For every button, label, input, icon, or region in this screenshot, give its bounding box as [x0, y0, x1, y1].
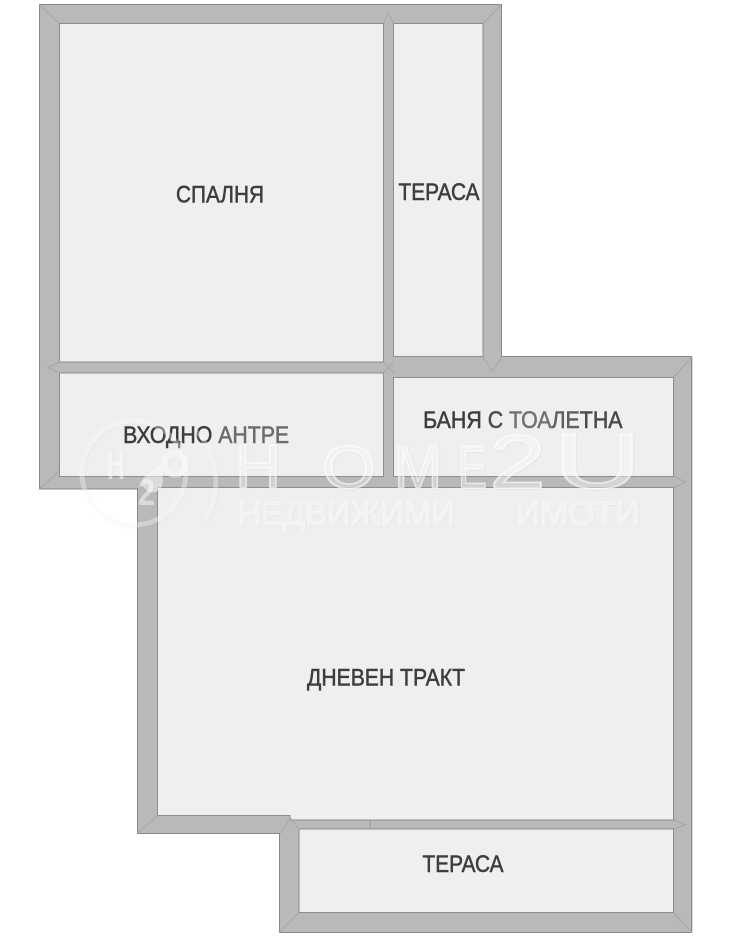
svg-text:O: O	[322, 434, 376, 501]
svg-text:ТЕРАСА: ТЕРАСА	[423, 851, 504, 878]
svg-text:ТЕРАСА: ТЕРАСА	[399, 179, 480, 206]
svg-text:ИМОТИ: ИМОТИ	[516, 495, 640, 532]
svg-text:СПАЛНЯ: СПАЛНЯ	[176, 182, 264, 209]
svg-text:U: U	[554, 417, 641, 505]
svg-text:НЕДВИЖИМИ: НЕДВИЖИМИ	[238, 495, 455, 532]
svg-text:E: E	[458, 434, 487, 501]
svg-text:H: H	[107, 441, 125, 488]
svg-text:БАНЯ: БАНЯ	[423, 407, 482, 434]
svg-text:ДНЕВЕН ТРАКТ: ДНЕВЕН ТРАКТ	[307, 665, 465, 692]
svg-text:H: H	[235, 433, 281, 502]
svg-text:M: M	[394, 434, 442, 501]
svg-text:2: 2	[489, 420, 546, 505]
